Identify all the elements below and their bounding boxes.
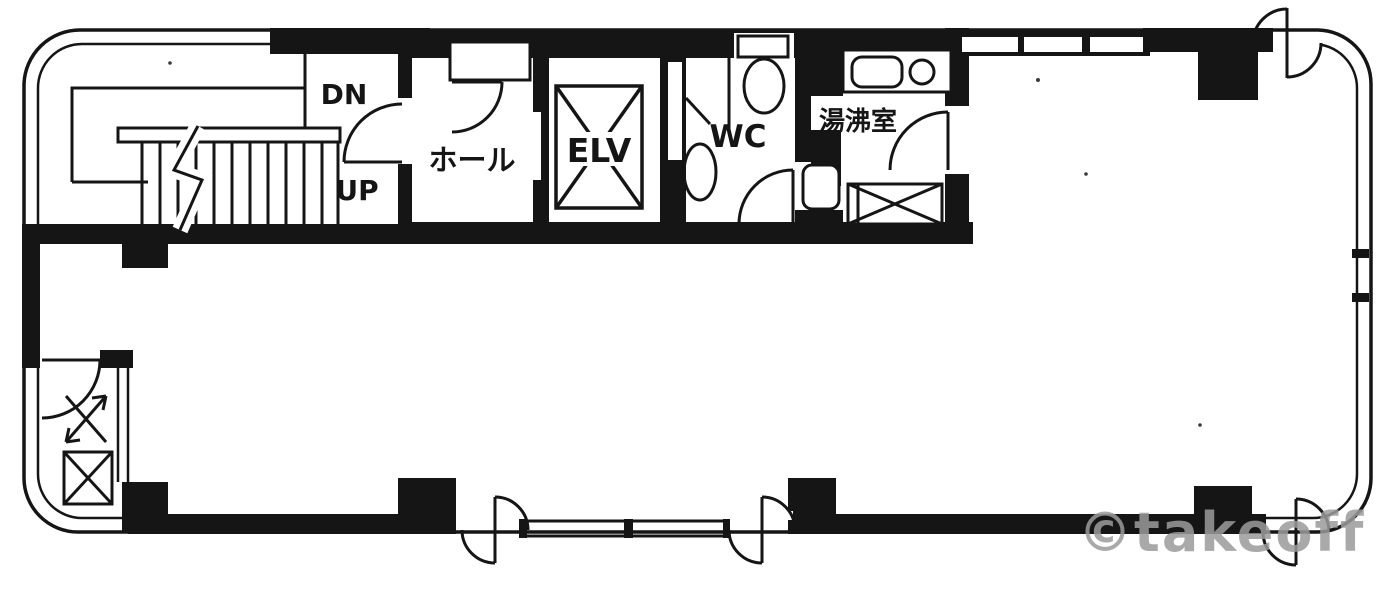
- wall: [100, 350, 133, 368]
- floor-plan-drawing: DN UP ホール ELV WC 湯沸室 ©takeoff: [0, 0, 1387, 593]
- bottom-left-room: [42, 360, 128, 504]
- watermark-text: ©takeoff: [1078, 501, 1365, 564]
- stair-handrail: [118, 128, 340, 142]
- top-doorway: [1273, 40, 1320, 48]
- structural-walls: [22, 28, 1369, 534]
- door-swing: [42, 360, 100, 418]
- door-swing: [344, 104, 402, 162]
- wc-angled-wall: [686, 98, 710, 124]
- duct-shaft-x: [64, 452, 112, 504]
- wall-niche: [668, 62, 682, 160]
- kitchenette-label: 湯沸室: [819, 106, 897, 137]
- pillar: [398, 478, 456, 534]
- stair-treads: [142, 142, 338, 224]
- pillar: [1198, 40, 1258, 100]
- pillar: [122, 226, 168, 268]
- double-swing-door: [462, 497, 528, 563]
- duct-shaft-arrows: [66, 396, 106, 442]
- door-swing: [890, 112, 948, 170]
- wall: [811, 52, 843, 96]
- top-window-strip: [962, 37, 1018, 52]
- wall-niche: [531, 112, 541, 180]
- wc-label: WC: [710, 119, 767, 155]
- toilet-bowl-icon: [744, 59, 784, 113]
- hall-label: ホール: [428, 143, 515, 177]
- top-window-strip: [1024, 37, 1082, 52]
- stair-doorway: [398, 98, 412, 164]
- door-swing: [739, 170, 793, 224]
- outer-wall-shell: [24, 30, 1371, 532]
- door-swing: [452, 82, 502, 132]
- window-mullion: [1352, 249, 1369, 258]
- wall: [128, 514, 403, 534]
- top-window-strip: [1090, 37, 1143, 52]
- wall: [22, 224, 412, 244]
- floor-plan: DN UP ホール ELV WC 湯沸室 ©takeoff: [0, 0, 1387, 593]
- wall: [22, 226, 40, 368]
- wall: [795, 30, 811, 162]
- stairs-down-label: DN: [321, 78, 368, 111]
- hand-sink-icon: [803, 165, 839, 209]
- inner-boundary-line: [38, 44, 1357, 518]
- window-mullion: [624, 519, 633, 538]
- duct-shaft-x: [848, 184, 942, 224]
- wall: [795, 210, 843, 226]
- outer-boundary-line: [24, 30, 1371, 532]
- double-swing-door: [729, 497, 795, 563]
- bottom-opening: [456, 511, 793, 520]
- window-mullion: [1352, 293, 1369, 302]
- stairs-up-label: UP: [335, 174, 378, 207]
- duct-niche: [450, 42, 530, 80]
- elevator-label: ELV: [567, 131, 632, 170]
